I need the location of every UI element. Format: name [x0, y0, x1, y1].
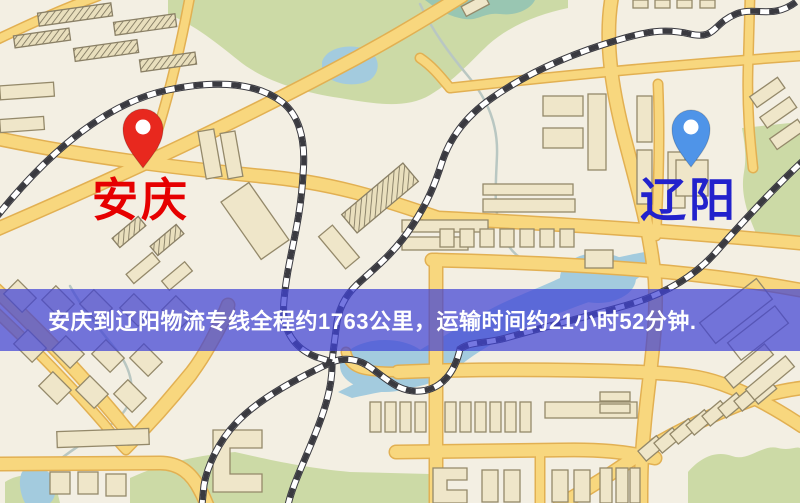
destination-city-label: 辽阳: [640, 178, 738, 224]
origin-city-label: 安庆: [92, 178, 190, 224]
map-view: 安庆 辽阳 安庆到辽阳物流专线全程约1763公里，运输时间约21小时52分钟.: [0, 0, 800, 503]
route-info-banner: 安庆到辽阳物流专线全程约1763公里，运输时间约21小时52分钟.: [0, 289, 800, 351]
map-canvas: [0, 0, 800, 503]
route-info-text: 安庆到辽阳物流专线全程约1763公里，运输时间约21小时52分钟.: [0, 304, 697, 336]
